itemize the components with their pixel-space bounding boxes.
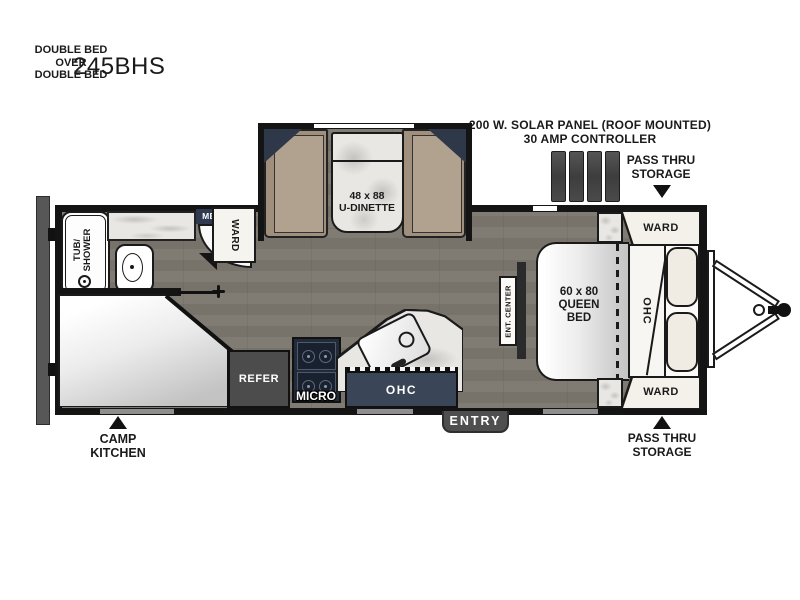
double-bunk-bed-surface <box>60 296 230 406</box>
solar-panel-cell <box>587 151 602 202</box>
overhead-cabinet-kitchen: OHC <box>345 371 458 408</box>
tv-wall <box>517 262 526 359</box>
drain-icon <box>78 275 91 288</box>
refrigerator: REFER <box>228 350 290 408</box>
floorplan-page: 245BHS 200 W. SOLAR PANEL (ROOF MOUNTED)… <box>0 0 800 600</box>
pass-thru-top-marker-icon <box>653 185 671 198</box>
overhead-cabinet-bedroom: OHC <box>628 244 666 378</box>
wardrobe-bottom: WARD <box>623 376 699 408</box>
bunk-label-line1: DOUBLE BED <box>10 44 132 57</box>
window-bottom-center <box>357 409 413 414</box>
solar-panel-icon <box>551 151 620 202</box>
entry-door: ENTRY <box>442 411 509 433</box>
dinette-name: U-DINETTE <box>322 202 412 214</box>
hitch-arm-top <box>712 260 780 308</box>
entertainment-center-label: ENT. CENTER <box>504 285 513 337</box>
stove-grate-top <box>297 342 336 370</box>
camp-kitchen-line1: CAMP <box>68 432 168 446</box>
slideout-wall-left <box>258 123 264 241</box>
bunk-label-line2: OVER <box>10 57 132 70</box>
bunk-label-line3: DOUBLE BED <box>10 69 132 82</box>
window-bedroom <box>533 206 557 211</box>
wardrobe-top: WARD <box>623 212 699 244</box>
queen-bed-line2: QUEEN <box>536 299 622 312</box>
dinette-table-seam <box>333 160 402 162</box>
tub-shower: TUB/ SHOWER <box>61 211 110 296</box>
entry-step <box>543 409 598 414</box>
pass-thru-bottom-line2: STORAGE <box>612 446 712 460</box>
hitch-jack-icon <box>753 304 765 316</box>
ohc-kitchen-label: OHC <box>386 383 417 397</box>
kitchen-sink-drain-icon <box>396 329 418 351</box>
wardrobe-bathroom-label: WARD <box>229 219 240 252</box>
hitch-coupler-ball-icon <box>777 303 791 317</box>
dinette-size: 48 x 88 <box>322 190 412 202</box>
toilet-drain-dot <box>130 265 134 269</box>
wardrobe-bottom-label: WARD <box>623 376 699 408</box>
camp-kitchen-label: CAMP KITCHEN <box>68 432 168 460</box>
window-slideout <box>314 124 414 128</box>
solar-panel-cell <box>569 151 584 202</box>
wardrobe-bathroom: WARD <box>212 207 256 263</box>
queen-bed-size: 60 x 80 <box>536 286 622 299</box>
refrigerator-label: REFER <box>239 373 279 385</box>
dinette-label: 48 x 88 U-DINETTE <box>322 190 412 214</box>
hitch-arm-bottom <box>712 312 780 360</box>
bed-head-dashline <box>616 244 619 379</box>
camp-kitchen-line2: KITCHEN <box>68 446 168 460</box>
wardrobe-top-label: WARD <box>623 212 699 244</box>
nightstand-bottom <box>597 378 623 408</box>
pass-thru-bottom-marker-icon <box>653 416 671 429</box>
entry-label: ENTRY <box>450 414 502 428</box>
front-storage-door-bottom <box>666 312 698 372</box>
solar-panel-annotation-line2: 30 AMP CONTROLLER <box>452 132 728 146</box>
camp-kitchen-marker-icon <box>109 416 127 429</box>
nightstand-top <box>597 212 623 243</box>
wall-top-right <box>472 205 707 212</box>
bathroom-wall <box>55 288 181 296</box>
pass-thru-storage-bottom-label: PASS THRU STORAGE <box>612 432 712 459</box>
queen-bed-line3: BED <box>536 312 622 325</box>
queen-bed-label: 60 x 80 QUEEN BED <box>536 286 622 325</box>
bunk-bed-label: DOUBLE BED OVER DOUBLE BED <box>10 44 132 82</box>
solar-panel-cell <box>551 151 566 202</box>
burner-icon <box>302 350 315 363</box>
door-handle-icon <box>212 290 225 293</box>
drain-dot <box>83 280 86 283</box>
front-storage-door-top <box>666 247 698 307</box>
bathroom-counter <box>107 211 196 241</box>
slideout-wall-right <box>466 123 472 241</box>
entertainment-center: ENT. CENTER <box>499 276 517 346</box>
dinette-table <box>331 132 404 233</box>
window-bottom-left <box>100 409 174 414</box>
microwave-label: MICRO <box>288 389 344 403</box>
pass-thru-top-line1: PASS THRU <box>611 154 711 168</box>
pass-thru-storage-top-label: PASS THRU STORAGE <box>611 154 711 181</box>
dinette-bench-left-cushion <box>274 135 324 233</box>
burner-icon <box>319 350 332 363</box>
solar-panel-annotation-line1: 200 W. SOLAR PANEL (ROOF MOUNTED) <box>452 118 728 132</box>
double-bunk-bed <box>60 296 230 406</box>
pass-thru-bottom-line1: PASS THRU <box>612 432 712 446</box>
ohc-bedroom-label: OHC <box>641 297 653 324</box>
toilet <box>115 244 154 293</box>
pass-thru-top-line2: STORAGE <box>611 168 711 182</box>
